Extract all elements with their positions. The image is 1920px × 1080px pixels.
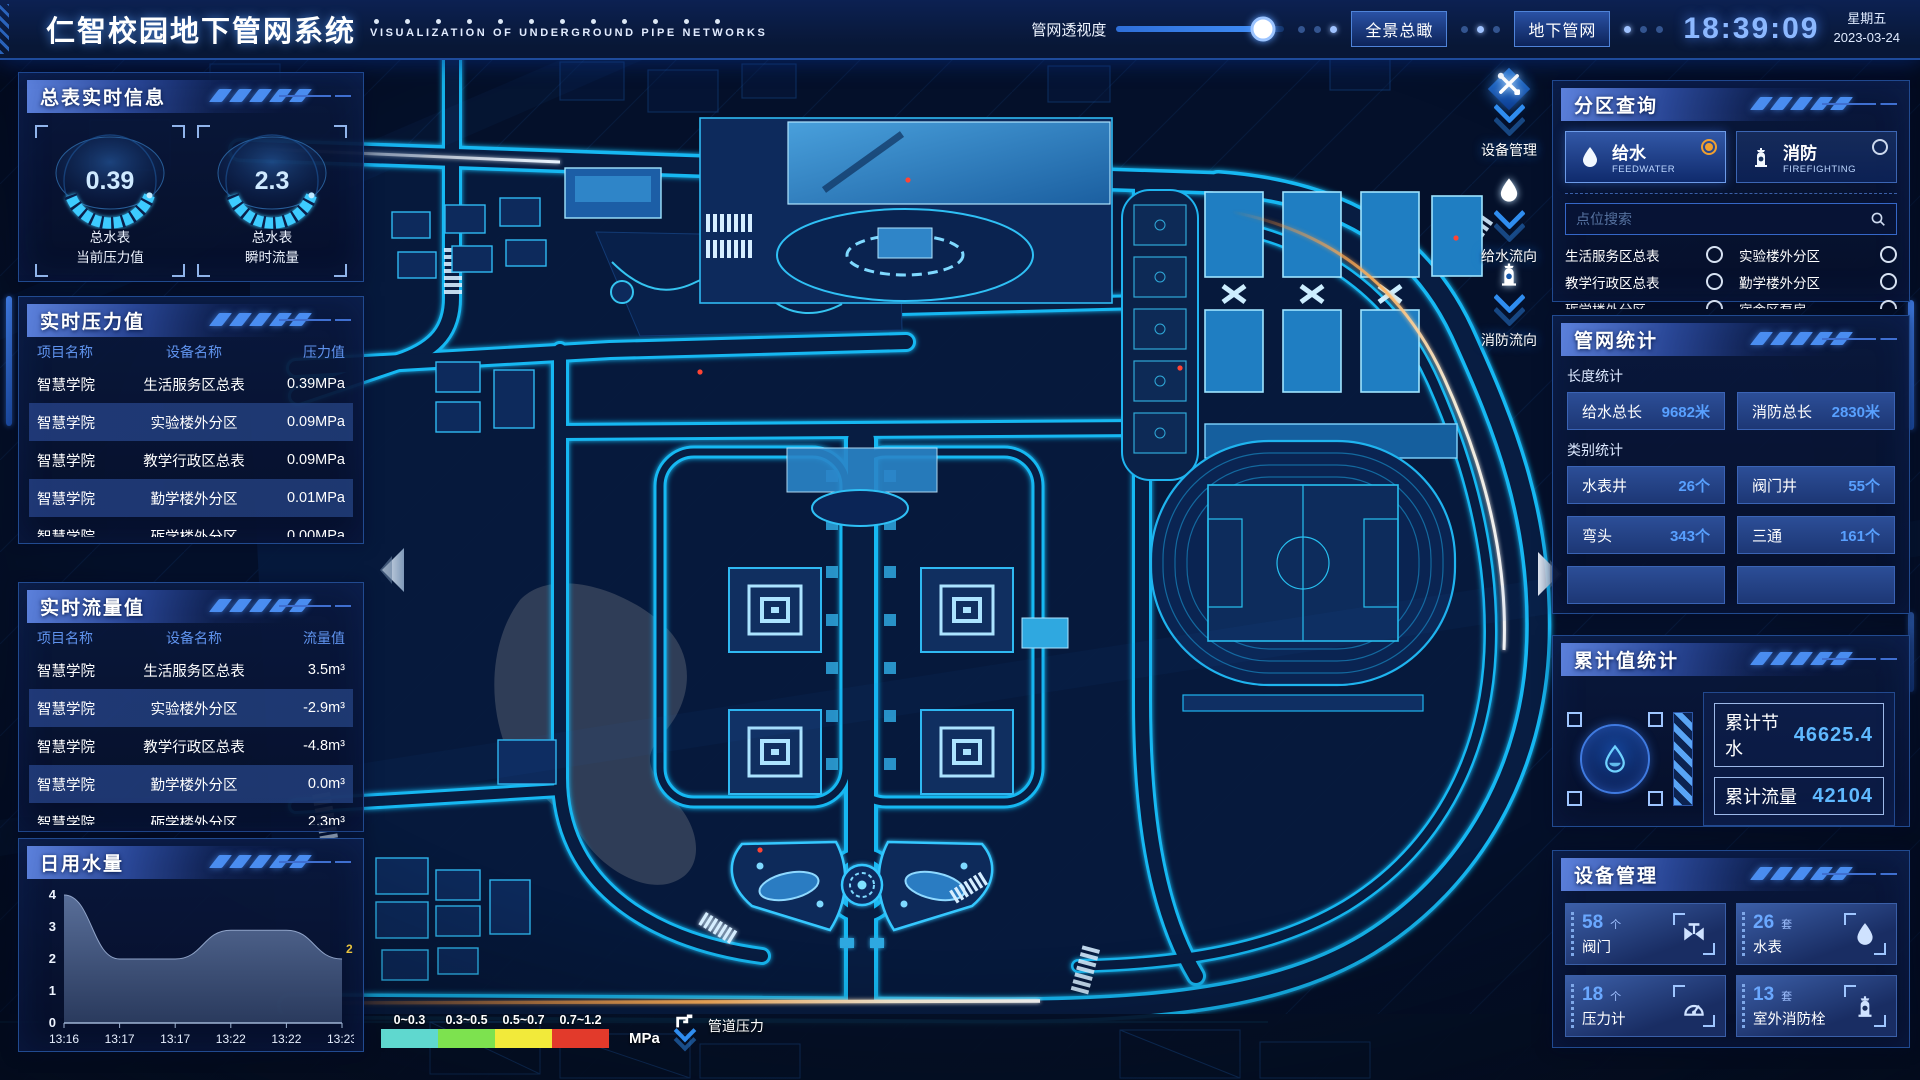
zone-point-list: 生活服务区总表 实验楼外分区 教学行政区总表 勤学楼外分区 砺学楼外分区 宿舍区…: [1565, 241, 1897, 309]
legend-range: 0.7~1.2: [552, 1013, 609, 1027]
hydrant-icon: [1749, 145, 1773, 169]
svg-text:2: 2: [346, 942, 353, 956]
table-row: 智慧学院教学行政区总表-4.8m³: [29, 727, 353, 765]
legend-label: 管道压力: [708, 1016, 764, 1036]
stat-chip: 阀门井55个: [1737, 466, 1895, 504]
hydrant-icon: [1844, 985, 1886, 1027]
svg-text:3: 3: [49, 919, 56, 934]
gauge-pressure: 0.39 总水表当前压力值: [35, 125, 185, 277]
map-tool-fire-flow[interactable]: 消防流向: [1466, 252, 1552, 350]
radio-unselected-icon[interactable]: [1706, 273, 1723, 290]
table-row: 智慧学院勤学楼外分区0.01MPa: [29, 479, 353, 517]
table-row: 智慧学院生活服务区总表3.5m³: [29, 651, 353, 689]
stat-chip: 弯头343个: [1567, 516, 1725, 554]
svg-text:13:17: 13:17: [105, 1032, 135, 1046]
radio-unselected-icon[interactable]: [1872, 139, 1888, 155]
gauge-label: 总水表瞬时流量: [197, 228, 347, 267]
accumulated-value-row: 累计节水46625.4: [1714, 703, 1884, 767]
device-card-pressure-gauges: 18个 压力计: [1565, 975, 1726, 1037]
map-prev-arrow[interactable]: [372, 544, 412, 601]
list-item[interactable]: 教学行政区总表: [1565, 268, 1723, 295]
title-dots-decoration: [370, 19, 767, 24]
list-item[interactable]: 砺学楼外分区: [1565, 295, 1723, 309]
list-item[interactable]: 实验楼外分区: [1739, 241, 1897, 268]
gauge-dial-icon: 0.39: [40, 125, 180, 229]
panel-title: 设备管理: [1561, 861, 1658, 888]
slider-label: 管网透视度: [1031, 19, 1106, 40]
panel-accumulated-stats: 累计值统计 累计节水46625.4 累计流量42104: [1552, 635, 1910, 827]
svg-text:2: 2: [49, 951, 56, 966]
transparency-slider[interactable]: [1116, 26, 1284, 32]
panel-zone-query: 分区查询 给水 FEEDWATER 消防 FIREFIGHTING 点位搜索: [1552, 80, 1910, 302]
hazard-stripe-decoration: [1673, 712, 1693, 806]
table-row: 智慧学院教学行政区总表0.09MPa: [29, 441, 353, 479]
svg-text:13:22: 13:22: [216, 1032, 246, 1046]
tab-label: 消防: [1783, 139, 1856, 164]
radio-selected-icon[interactable]: [1701, 139, 1717, 155]
radio-unselected-icon[interactable]: [1880, 273, 1897, 290]
panel-realtime-pressure: 实时压力值 项目名称设备名称压力值 智慧学院生活服务区总表0.39MPa 智慧学…: [18, 296, 364, 544]
water-drop-icon: [1600, 744, 1630, 774]
legend-unit: MPa: [629, 1030, 660, 1047]
tab-sublabel: FIREFIGHTING: [1783, 164, 1856, 175]
map-tool-device-management[interactable]: 设备管理: [1466, 62, 1552, 160]
panel-title: 总表实时信息: [27, 83, 166, 110]
table-header: 项目名称设备名称压力值: [29, 339, 353, 365]
flow-table: 项目名称设备名称流量值 智慧学院生活服务区总表3.5m³ 智慧学院实验楼外分区-…: [29, 625, 353, 825]
pressure-table: 项目名称设备名称压力值 智慧学院生活服务区总表0.39MPa 智慧学院实验楼外分…: [29, 339, 353, 537]
daily-usage-chart: 4321013:1613:1713:1713:2213:2213:232: [28, 881, 354, 1049]
panel-title: 管网统计: [1561, 326, 1658, 353]
svg-text:13:17: 13:17: [160, 1032, 190, 1046]
svg-text:13:23: 13:23: [327, 1032, 354, 1046]
search-input[interactable]: 点位搜索: [1565, 203, 1897, 235]
valve-icon: [1673, 913, 1715, 955]
table-row: 智慧学院生活服务区总表0.39MPa: [29, 365, 353, 403]
panel-title: 日用水量: [27, 849, 124, 876]
pressure-legend: 0~0.3 0.3~0.5 0.5~0.7 0.7~1.2 MPa 管道压力: [381, 1010, 764, 1048]
radio-unselected-icon[interactable]: [1880, 300, 1897, 309]
pipe-pressure-icon[interactable]: [674, 1010, 696, 1048]
app-subtitle: VISUALIZATION OF UNDERGROUND PIPE NETWOR…: [370, 27, 767, 39]
stat-chip: 三通161个: [1737, 516, 1895, 554]
panel-meter-realtime: 总表实时信息 0.39 总水表当前压力值: [18, 72, 364, 282]
panel-title: 累计值统计: [1561, 646, 1679, 673]
svg-text:4: 4: [49, 887, 57, 902]
map-tool-label: 设备管理: [1481, 140, 1537, 160]
panel-device-management: 设备管理 58个 阀门 26套 水表 18个 压力计 13套 室: [1552, 850, 1910, 1048]
screen-edge-decoration: [6, 296, 12, 426]
search-placeholder: 点位搜索: [1576, 209, 1632, 229]
water-badge: [1567, 712, 1663, 806]
legend-range: 0~0.3: [381, 1013, 438, 1027]
stat-chip-clipped: [1737, 566, 1895, 604]
tab-sublabel: FEEDWATER: [1612, 164, 1675, 175]
device-card-valves: 58个 阀门: [1565, 903, 1726, 965]
legend-range: 0.5~0.7: [495, 1013, 552, 1027]
map-tool-label: 消防流向: [1481, 330, 1537, 350]
water-drop-icon: [1578, 145, 1602, 169]
search-icon: [1870, 211, 1886, 227]
water-meter-icon: [1844, 913, 1886, 955]
table-row: 智慧学院砺学楼外分区0.00MPa: [29, 517, 353, 537]
table-row: 智慧学院砺学楼外分区2.3m³: [29, 803, 353, 825]
table-header: 项目名称设备名称流量值: [29, 625, 353, 651]
tab-label: 给水: [1612, 139, 1675, 164]
gauge-value: 2.3: [255, 167, 290, 195]
table-row: 智慧学院实验楼外分区0.09MPa: [29, 403, 353, 441]
panel-pipe-network-stats: 管网统计 长度统计 给水总长9682米 消防总长2830米 类别统计 水表井26…: [1552, 315, 1910, 614]
header-bar: 仁智校园地下管网系统 VISUALIZATION OF UNDERGROUND …: [0, 0, 1920, 60]
list-item[interactable]: 宿舍区泵房: [1739, 295, 1897, 309]
transparency-slider-thumb[interactable]: [1250, 17, 1275, 42]
underground-pipes-button[interactable]: 地下管网: [1514, 11, 1610, 47]
dashboard: 仁智校园地下管网系统 VISUALIZATION OF UNDERGROUND …: [0, 0, 1920, 1080]
stat-chip: 消防总长2830米: [1737, 392, 1895, 430]
weekday: 星期五: [1834, 10, 1901, 29]
tab-firefighting[interactable]: 消防 FIREFIGHTING: [1736, 131, 1897, 183]
transparency-slider-fill: [1116, 26, 1262, 32]
date-block: 星期五 2023-03-24: [1834, 10, 1901, 48]
radio-unselected-icon[interactable]: [1706, 300, 1723, 309]
gauge-flow: 2.3 总水表瞬时流量: [197, 125, 347, 277]
accumulated-value-row: 累计流量42104: [1714, 777, 1884, 815]
panel-title: 分区查询: [1561, 91, 1658, 118]
stat-chip-clipped: [1567, 566, 1725, 604]
gauge-dial-icon: 2.3: [202, 125, 342, 229]
panel-daily-water-usage: 日用水量 4321013:1613:1713:1713:2213:2213:23…: [18, 838, 364, 1052]
gauge-label: 总水表当前压力值: [35, 228, 185, 267]
gauge-value: 0.39: [86, 167, 135, 195]
length-stats-label: 长度统计: [1567, 366, 1895, 386]
date: 2023-03-24: [1834, 29, 1901, 48]
divider: [1565, 193, 1897, 194]
pipe-transparency-control: 管网透视度: [1031, 19, 1284, 40]
list-item[interactable]: 生活服务区总表: [1565, 241, 1723, 268]
app-title: 仁智校园地下管网系统: [46, 8, 356, 50]
pressure-gauge-icon: [1673, 985, 1715, 1027]
radio-unselected-icon[interactable]: [1706, 246, 1723, 263]
panel-title: 实时压力值: [27, 307, 145, 334]
svg-text:0: 0: [49, 1015, 56, 1030]
clock: 18:39:09: [1683, 12, 1819, 46]
svg-text:13:16: 13:16: [49, 1032, 79, 1046]
category-stats-label: 类别统计: [1567, 440, 1895, 460]
svg-text:1: 1: [49, 983, 56, 998]
stat-chip: 水表井26个: [1567, 466, 1725, 504]
panel-realtime-flow: 实时流量值 项目名称设备名称流量值 智慧学院生活服务区总表3.5m³ 智慧学院实…: [18, 582, 364, 832]
table-row: 智慧学院实验楼外分区-2.9m³: [29, 689, 353, 727]
overview-button[interactable]: 全景总瞰: [1351, 11, 1447, 47]
svg-text:13:22: 13:22: [271, 1032, 301, 1046]
panel-title: 实时流量值: [27, 593, 145, 620]
stat-chip: 给水总长9682米: [1567, 392, 1725, 430]
dots-decoration: [1461, 26, 1500, 33]
device-card-water-meters: 26套 水表: [1736, 903, 1897, 965]
dots-decoration: [1298, 26, 1337, 33]
device-card-outdoor-hydrants: 13套 室外消防栓: [1736, 975, 1897, 1037]
radio-unselected-icon[interactable]: [1880, 246, 1897, 263]
legend-range: 0.3~0.5: [438, 1013, 495, 1027]
dots-decoration: [1624, 26, 1663, 33]
table-row: 智慧学院勤学楼外分区0.0m³: [29, 765, 353, 803]
legend-colorbar: [381, 1029, 609, 1048]
tab-feedwater[interactable]: 给水 FEEDWATER: [1565, 131, 1726, 183]
list-item[interactable]: 勤学楼外分区: [1739, 268, 1897, 295]
